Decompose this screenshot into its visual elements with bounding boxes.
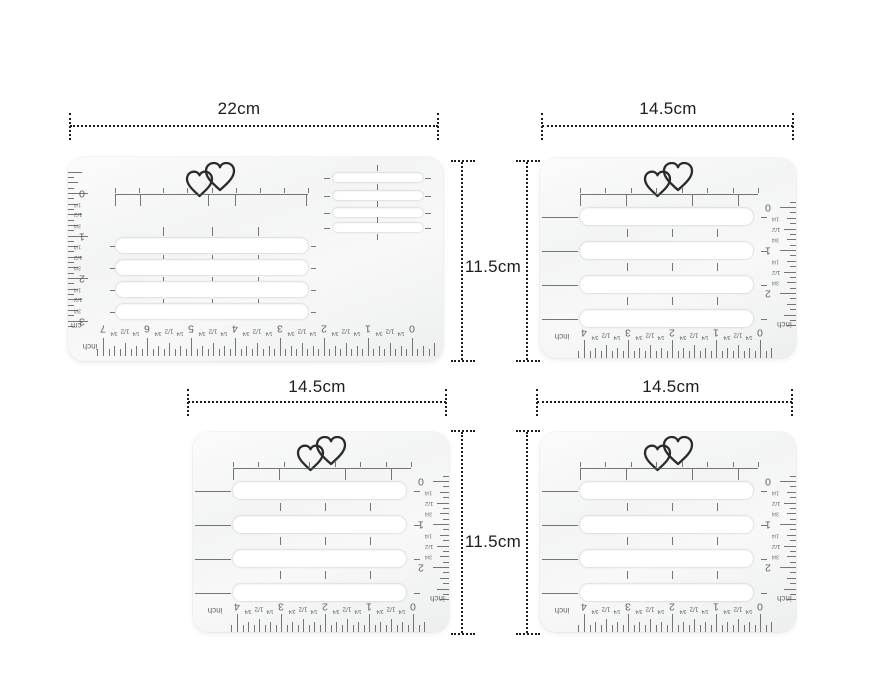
ruler-tick xyxy=(68,326,74,327)
ruler-tick xyxy=(212,227,213,236)
ruler-tick xyxy=(235,195,236,206)
ruler-number: 4 xyxy=(234,601,240,612)
ruler-tick xyxy=(325,503,326,511)
ruler-tick xyxy=(623,625,624,632)
width-dimension-line-bottom-left xyxy=(188,401,446,403)
ruler-tick xyxy=(678,625,679,632)
ruler-tick xyxy=(790,277,796,278)
ruler-tick xyxy=(377,184,378,190)
ruler-tick xyxy=(780,250,796,251)
ruler-tick xyxy=(790,266,796,267)
ruler-fraction: 3/4 xyxy=(425,554,432,559)
ruler-tick xyxy=(694,345,695,358)
ruler-tick xyxy=(311,246,316,247)
ruler-tick xyxy=(612,351,613,358)
ruler-tick xyxy=(379,346,380,356)
ruler-tick xyxy=(612,625,613,632)
ruler-tick xyxy=(628,340,629,358)
ruler-tick xyxy=(230,349,231,356)
ruler-tick xyxy=(235,338,236,356)
envelope-guide-stencil-14-5cm-bottom-right: 01/41/23/411/41/23/42inch41/23/41/431/23… xyxy=(540,432,796,632)
ruler-tick xyxy=(766,625,767,632)
ruler-tick xyxy=(68,305,74,306)
ruler-tick xyxy=(169,343,170,356)
ruler-tick xyxy=(110,246,115,247)
ruler-tick xyxy=(790,320,796,321)
ruler-tick xyxy=(584,614,585,632)
ruler-tick xyxy=(787,239,796,240)
ruler-tick xyxy=(580,469,581,480)
ruler-tick xyxy=(790,486,796,487)
ruler-fraction: 1/4 xyxy=(267,608,274,613)
ruler-tick xyxy=(287,625,288,632)
ruler-tick xyxy=(645,625,646,632)
ruler-tick xyxy=(672,297,673,305)
ruler-tick xyxy=(233,462,234,467)
ruler-tick xyxy=(440,578,449,579)
ruler-tick xyxy=(375,625,376,632)
ruler-tick xyxy=(335,462,336,467)
ruler-tick xyxy=(153,349,154,356)
ruler-number: 1 xyxy=(365,323,371,334)
ruler-tick xyxy=(790,223,796,224)
ruler-tick xyxy=(784,315,796,316)
ruler-tick xyxy=(580,195,581,206)
ruler-tick xyxy=(601,625,602,632)
ruler-tick xyxy=(308,188,309,193)
ruler-tick xyxy=(68,172,82,173)
ruler-tick xyxy=(115,188,116,193)
ruler-tick xyxy=(68,214,82,215)
ruler-tick xyxy=(370,571,371,579)
ruler-tick xyxy=(790,234,796,235)
ruler-unit-label: inch xyxy=(83,342,98,350)
slot-extension-line xyxy=(542,251,578,252)
slot-extension-line xyxy=(195,491,231,492)
ruler-fraction: 1/4 xyxy=(614,334,621,339)
ruler-tick xyxy=(667,351,668,358)
ruler-tick xyxy=(291,346,292,356)
ruler-tick xyxy=(377,201,378,207)
ruler-fraction: 1/2 xyxy=(425,500,433,506)
ruler-unit-label: inch xyxy=(777,594,792,602)
ruler-tick xyxy=(243,625,244,632)
ruler-tick xyxy=(68,225,78,226)
ruler-tick xyxy=(700,351,701,358)
ruler-tick xyxy=(787,513,796,514)
ruler-fraction: 1/2 xyxy=(734,331,743,338)
slot-extension-line xyxy=(195,559,231,560)
ruler-tick xyxy=(787,578,796,579)
ruler-tick xyxy=(650,619,651,632)
ruler-fraction: 1/4 xyxy=(221,330,228,335)
slot-extension-line xyxy=(542,559,578,560)
ruler-number: 1 xyxy=(713,601,719,612)
ruler-tick xyxy=(780,567,796,568)
ruler-tick xyxy=(443,529,449,530)
ruler-tick xyxy=(440,556,449,557)
ruler-tick xyxy=(131,349,132,356)
height-label-row1: 11.5cm xyxy=(465,258,521,275)
ruler-fraction: 3/4 xyxy=(592,334,599,339)
ruler-tick xyxy=(324,196,330,197)
ruler-unit-label: inch xyxy=(555,606,570,614)
ruler-fraction: 1/4 xyxy=(658,334,665,339)
ruler-tick xyxy=(68,204,78,205)
address-slot xyxy=(233,516,406,533)
ruler-tick xyxy=(213,343,214,356)
ruler-tick xyxy=(790,594,796,595)
ruler-tick xyxy=(260,188,261,193)
ruler-tick xyxy=(103,338,104,356)
ruler-tick xyxy=(694,619,695,632)
ruler-tick xyxy=(254,625,255,632)
ruler-fraction: 3/4 xyxy=(287,330,294,335)
ruler-tick xyxy=(110,268,115,269)
address-slot xyxy=(580,584,753,601)
ruler-tick xyxy=(733,351,734,358)
address-slot xyxy=(116,238,308,253)
ruler-tick xyxy=(248,622,249,632)
ruler-tick xyxy=(749,348,750,358)
ruler-tick xyxy=(408,625,409,632)
ruler-tick xyxy=(692,469,693,480)
ruler-tick xyxy=(738,619,739,632)
ruler-tick xyxy=(68,220,74,221)
ruler-tick xyxy=(212,299,213,303)
ruler-fraction: 3/4 xyxy=(724,608,731,613)
ruler-tick xyxy=(605,462,606,467)
ruler-fraction: 1/2 xyxy=(299,605,308,612)
ruler-tick xyxy=(68,299,82,300)
ruler-tick xyxy=(258,255,259,259)
address-slot xyxy=(116,304,308,319)
writing-guide-line xyxy=(580,468,758,469)
ruler-tick xyxy=(717,571,718,579)
ruler-tick xyxy=(425,196,431,197)
ruler-tick xyxy=(335,346,336,356)
ruler-tick xyxy=(672,263,673,271)
ruler-tick xyxy=(606,345,607,358)
address-slot xyxy=(580,276,753,293)
ruler-tick xyxy=(236,188,237,193)
ruler-tick xyxy=(749,622,750,632)
ruler-tick xyxy=(682,188,683,193)
ruler-tick xyxy=(700,625,701,632)
ruler-tick xyxy=(212,277,213,281)
ruler-tick xyxy=(246,346,247,356)
ruler-tick xyxy=(440,513,449,514)
envelope-stencil-size-diagram: 22cm 14.5cm 11.5cm 14.5cm 14.5cm 11.5cm … xyxy=(0,0,875,696)
ruler-tick xyxy=(340,349,341,356)
ruler-tick xyxy=(689,351,690,358)
ruler-tick xyxy=(580,188,581,193)
ruler-tick xyxy=(370,503,371,511)
ruler-tick xyxy=(790,497,796,498)
ruler-tick xyxy=(590,625,591,632)
ruler-tick xyxy=(437,546,449,547)
ruler-fraction: 1/4 xyxy=(746,608,753,613)
ruler-tick xyxy=(707,188,708,193)
ruler-tick xyxy=(237,614,238,632)
ruler-tick xyxy=(650,345,651,358)
ruler-fraction: 1/4 xyxy=(425,532,432,537)
slot-extension-line xyxy=(195,593,231,594)
ruler-tick xyxy=(68,262,74,263)
ruler-number: 2 xyxy=(765,562,771,573)
ruler-tick xyxy=(68,273,74,274)
ruler-tick xyxy=(68,209,74,210)
ruler-tick xyxy=(325,571,326,579)
ruler-unit-label: inch xyxy=(208,606,223,614)
ruler-tick xyxy=(270,622,271,632)
ruler-fraction: 1/4 xyxy=(658,608,665,613)
ruler-fraction: 1/4 xyxy=(399,608,406,613)
ruler-tick xyxy=(758,462,759,467)
ruler-tick xyxy=(433,524,449,525)
ruler-fraction: 1/4 xyxy=(746,334,753,339)
ruler-tick xyxy=(187,188,188,193)
ruler-fraction: 1/2 xyxy=(255,605,264,612)
ruler-tick xyxy=(780,481,796,482)
address-slot xyxy=(233,550,406,567)
ruler-fraction: 3/4 xyxy=(111,330,118,335)
ruler-tick xyxy=(364,625,365,632)
ruler-tick xyxy=(672,229,673,237)
ruler-tick xyxy=(309,625,310,632)
ruler-number: 0 xyxy=(409,323,415,334)
ruler-number: 0 xyxy=(757,601,763,612)
ruler-tick xyxy=(787,325,796,326)
ruler-tick xyxy=(626,469,627,480)
ruler-tick xyxy=(425,213,431,214)
ruler-tick xyxy=(661,622,662,632)
ruler-tick xyxy=(440,535,449,536)
ruler-tick xyxy=(351,349,352,356)
ruler-tick xyxy=(738,469,739,480)
ruler-tick xyxy=(790,572,796,573)
ruler-tick xyxy=(443,572,449,573)
ruler-tick xyxy=(413,614,414,632)
ruler-tick xyxy=(311,268,316,269)
ruler-fraction: 3/4 xyxy=(377,608,384,613)
ruler-tick xyxy=(443,476,449,477)
ruler-tick xyxy=(790,583,796,584)
ruler-tick xyxy=(443,486,449,487)
ruler-tick xyxy=(631,462,632,467)
ruler-tick xyxy=(373,349,374,356)
envelope-guide-stencil-22cm: 01/41/23/411/41/23/421/41/23/43cm71/23/4… xyxy=(68,157,443,361)
ruler-tick xyxy=(733,625,734,632)
ruler-tick xyxy=(784,272,796,273)
return-address-slot xyxy=(333,208,423,217)
ruler-tick xyxy=(578,625,579,632)
height-dimension-line-bottom-right xyxy=(526,432,528,633)
ruler-number: 2 xyxy=(669,601,675,612)
ruler-number: 5 xyxy=(188,323,194,334)
ruler-fraction: 3/4 xyxy=(772,237,779,242)
ruler-tick xyxy=(787,218,796,219)
double-heart-icon xyxy=(642,436,696,481)
ruler-tick xyxy=(258,462,259,467)
ruler-tick xyxy=(760,614,761,632)
ruler-tick xyxy=(370,537,371,545)
ruler-tick xyxy=(672,503,673,511)
ruler-tick xyxy=(627,263,628,271)
ruler-tick xyxy=(443,519,449,520)
ruler-unit-label: inch xyxy=(777,320,792,328)
ruler-tick xyxy=(263,349,264,356)
ruler-fraction: 1/4 xyxy=(702,608,709,613)
address-slot xyxy=(116,282,308,297)
ruler-tick xyxy=(347,619,348,632)
ruler-tick xyxy=(68,267,78,268)
ruler-tick xyxy=(790,255,796,256)
ruler-fraction: 1/2 xyxy=(602,331,611,338)
width-label-bottom-right: 14.5cm xyxy=(642,378,700,395)
ruler-tick xyxy=(437,503,449,504)
ruler-tick xyxy=(790,562,796,563)
ruler-fraction: 1/4 xyxy=(425,489,432,494)
ruler-tick xyxy=(627,571,628,579)
ruler-tick xyxy=(787,282,796,283)
ruler-tick xyxy=(259,619,260,632)
ruler-fraction: 3/4 xyxy=(243,330,250,335)
ruler-tick xyxy=(771,622,772,632)
ruler-tick xyxy=(758,188,759,193)
width-dimension-line-top-right xyxy=(542,125,793,127)
ruler-tick xyxy=(656,351,657,358)
ruler-tick xyxy=(164,349,165,356)
ruler-tick xyxy=(683,622,684,632)
ruler-tick xyxy=(309,462,310,467)
ruler-tick xyxy=(197,349,198,356)
ruler-tick xyxy=(68,294,74,295)
ruler-tick xyxy=(414,593,420,594)
ruler-tick xyxy=(377,234,378,240)
ruler-tick xyxy=(424,622,425,632)
ruler-tick xyxy=(623,351,624,358)
ruler-tick xyxy=(672,537,673,545)
ruler-tick xyxy=(761,559,767,560)
ruler-tick xyxy=(279,469,280,480)
ruler-fraction: 1/2 xyxy=(385,327,394,334)
ruler-fraction: 1/2 xyxy=(734,605,743,612)
ruler-tick xyxy=(780,524,796,525)
ruler-tick xyxy=(790,288,796,289)
ruler-number: 3 xyxy=(625,327,631,338)
ruler-fraction: 1/4 xyxy=(702,334,709,339)
ruler-tick xyxy=(761,285,767,286)
ruler-tick xyxy=(580,462,581,467)
ruler-tick xyxy=(258,299,259,303)
ruler-fraction: 1/2 xyxy=(772,543,780,549)
ruler-tick xyxy=(358,622,359,632)
ruler-tick xyxy=(125,343,126,356)
ruler-tick xyxy=(68,289,78,290)
ruler-tick xyxy=(281,614,282,632)
ruler-fraction: 1/2 xyxy=(772,500,780,506)
ruler-fraction: 1/2 xyxy=(690,605,699,612)
ruler-tick xyxy=(771,348,772,358)
ruler-number: 2 xyxy=(765,288,771,299)
ruler-tick xyxy=(68,310,78,311)
ruler-tick xyxy=(672,614,673,632)
ruler-tick xyxy=(784,589,796,590)
ruler-tick xyxy=(584,340,585,358)
ruler-fraction: 3/4 xyxy=(636,334,643,339)
ruler-tick xyxy=(386,625,387,632)
ruler-tick xyxy=(324,338,325,356)
ruler-tick xyxy=(258,277,259,281)
ruler-tick xyxy=(314,622,315,632)
slot-extension-line xyxy=(542,319,578,320)
ruler-tick xyxy=(391,619,392,632)
ruler-tick xyxy=(722,351,723,358)
ruler-fraction: 1/4 xyxy=(772,489,779,494)
ruler-tick xyxy=(306,195,307,206)
ruler-tick xyxy=(412,338,413,356)
ruler-tick xyxy=(414,559,420,560)
ruler-tick xyxy=(744,351,745,358)
ruler-tick xyxy=(258,227,259,236)
return-address-slot xyxy=(333,223,423,232)
ruler-tick xyxy=(631,188,632,193)
ruler-tick xyxy=(716,340,717,358)
ruler-tick xyxy=(672,340,673,358)
ruler-fraction: 1/4 xyxy=(772,215,779,220)
address-slot xyxy=(580,242,753,259)
ruler-tick xyxy=(318,349,319,356)
ruler-number: 2 xyxy=(322,601,328,612)
ruler-tick xyxy=(672,571,673,579)
ruler-tick xyxy=(233,469,234,480)
ruler-tick xyxy=(280,537,281,545)
height-label-row2: 11.5cm xyxy=(465,533,521,550)
ruler-tick xyxy=(402,622,403,632)
ruler-tick xyxy=(276,625,277,632)
ruler-tick xyxy=(110,312,115,313)
ruler-tick xyxy=(401,346,402,356)
ruler-tick xyxy=(320,625,321,632)
ruler-tick xyxy=(280,338,281,356)
ruler-tick xyxy=(744,625,745,632)
ruler-fraction: 1/2 xyxy=(165,327,174,334)
width-label-22cm: 22cm xyxy=(218,100,261,117)
address-slot xyxy=(580,310,753,327)
ruler-fraction: 3/4 xyxy=(772,511,779,516)
ruler-fraction: 1/4 xyxy=(265,330,272,335)
ruler-tick xyxy=(311,290,316,291)
ruler-tick xyxy=(212,255,213,259)
ruler-tick xyxy=(766,351,767,358)
ruler-tick xyxy=(784,546,796,547)
ruler-tick xyxy=(790,202,796,203)
ruler-fraction: 1/4 xyxy=(133,330,140,335)
ruler-tick xyxy=(280,503,281,511)
ruler-tick xyxy=(336,622,337,632)
ruler-tick xyxy=(717,537,718,545)
ruler-tick xyxy=(120,349,121,356)
ruler-tick xyxy=(656,625,657,632)
slot-extension-line xyxy=(542,217,578,218)
address-slot xyxy=(580,516,753,533)
ruler-tick xyxy=(68,182,78,183)
ruler-fraction: 1/4 xyxy=(614,608,621,613)
double-heart-icon xyxy=(295,436,349,481)
ruler-tick xyxy=(163,277,164,281)
address-slot xyxy=(233,482,406,499)
